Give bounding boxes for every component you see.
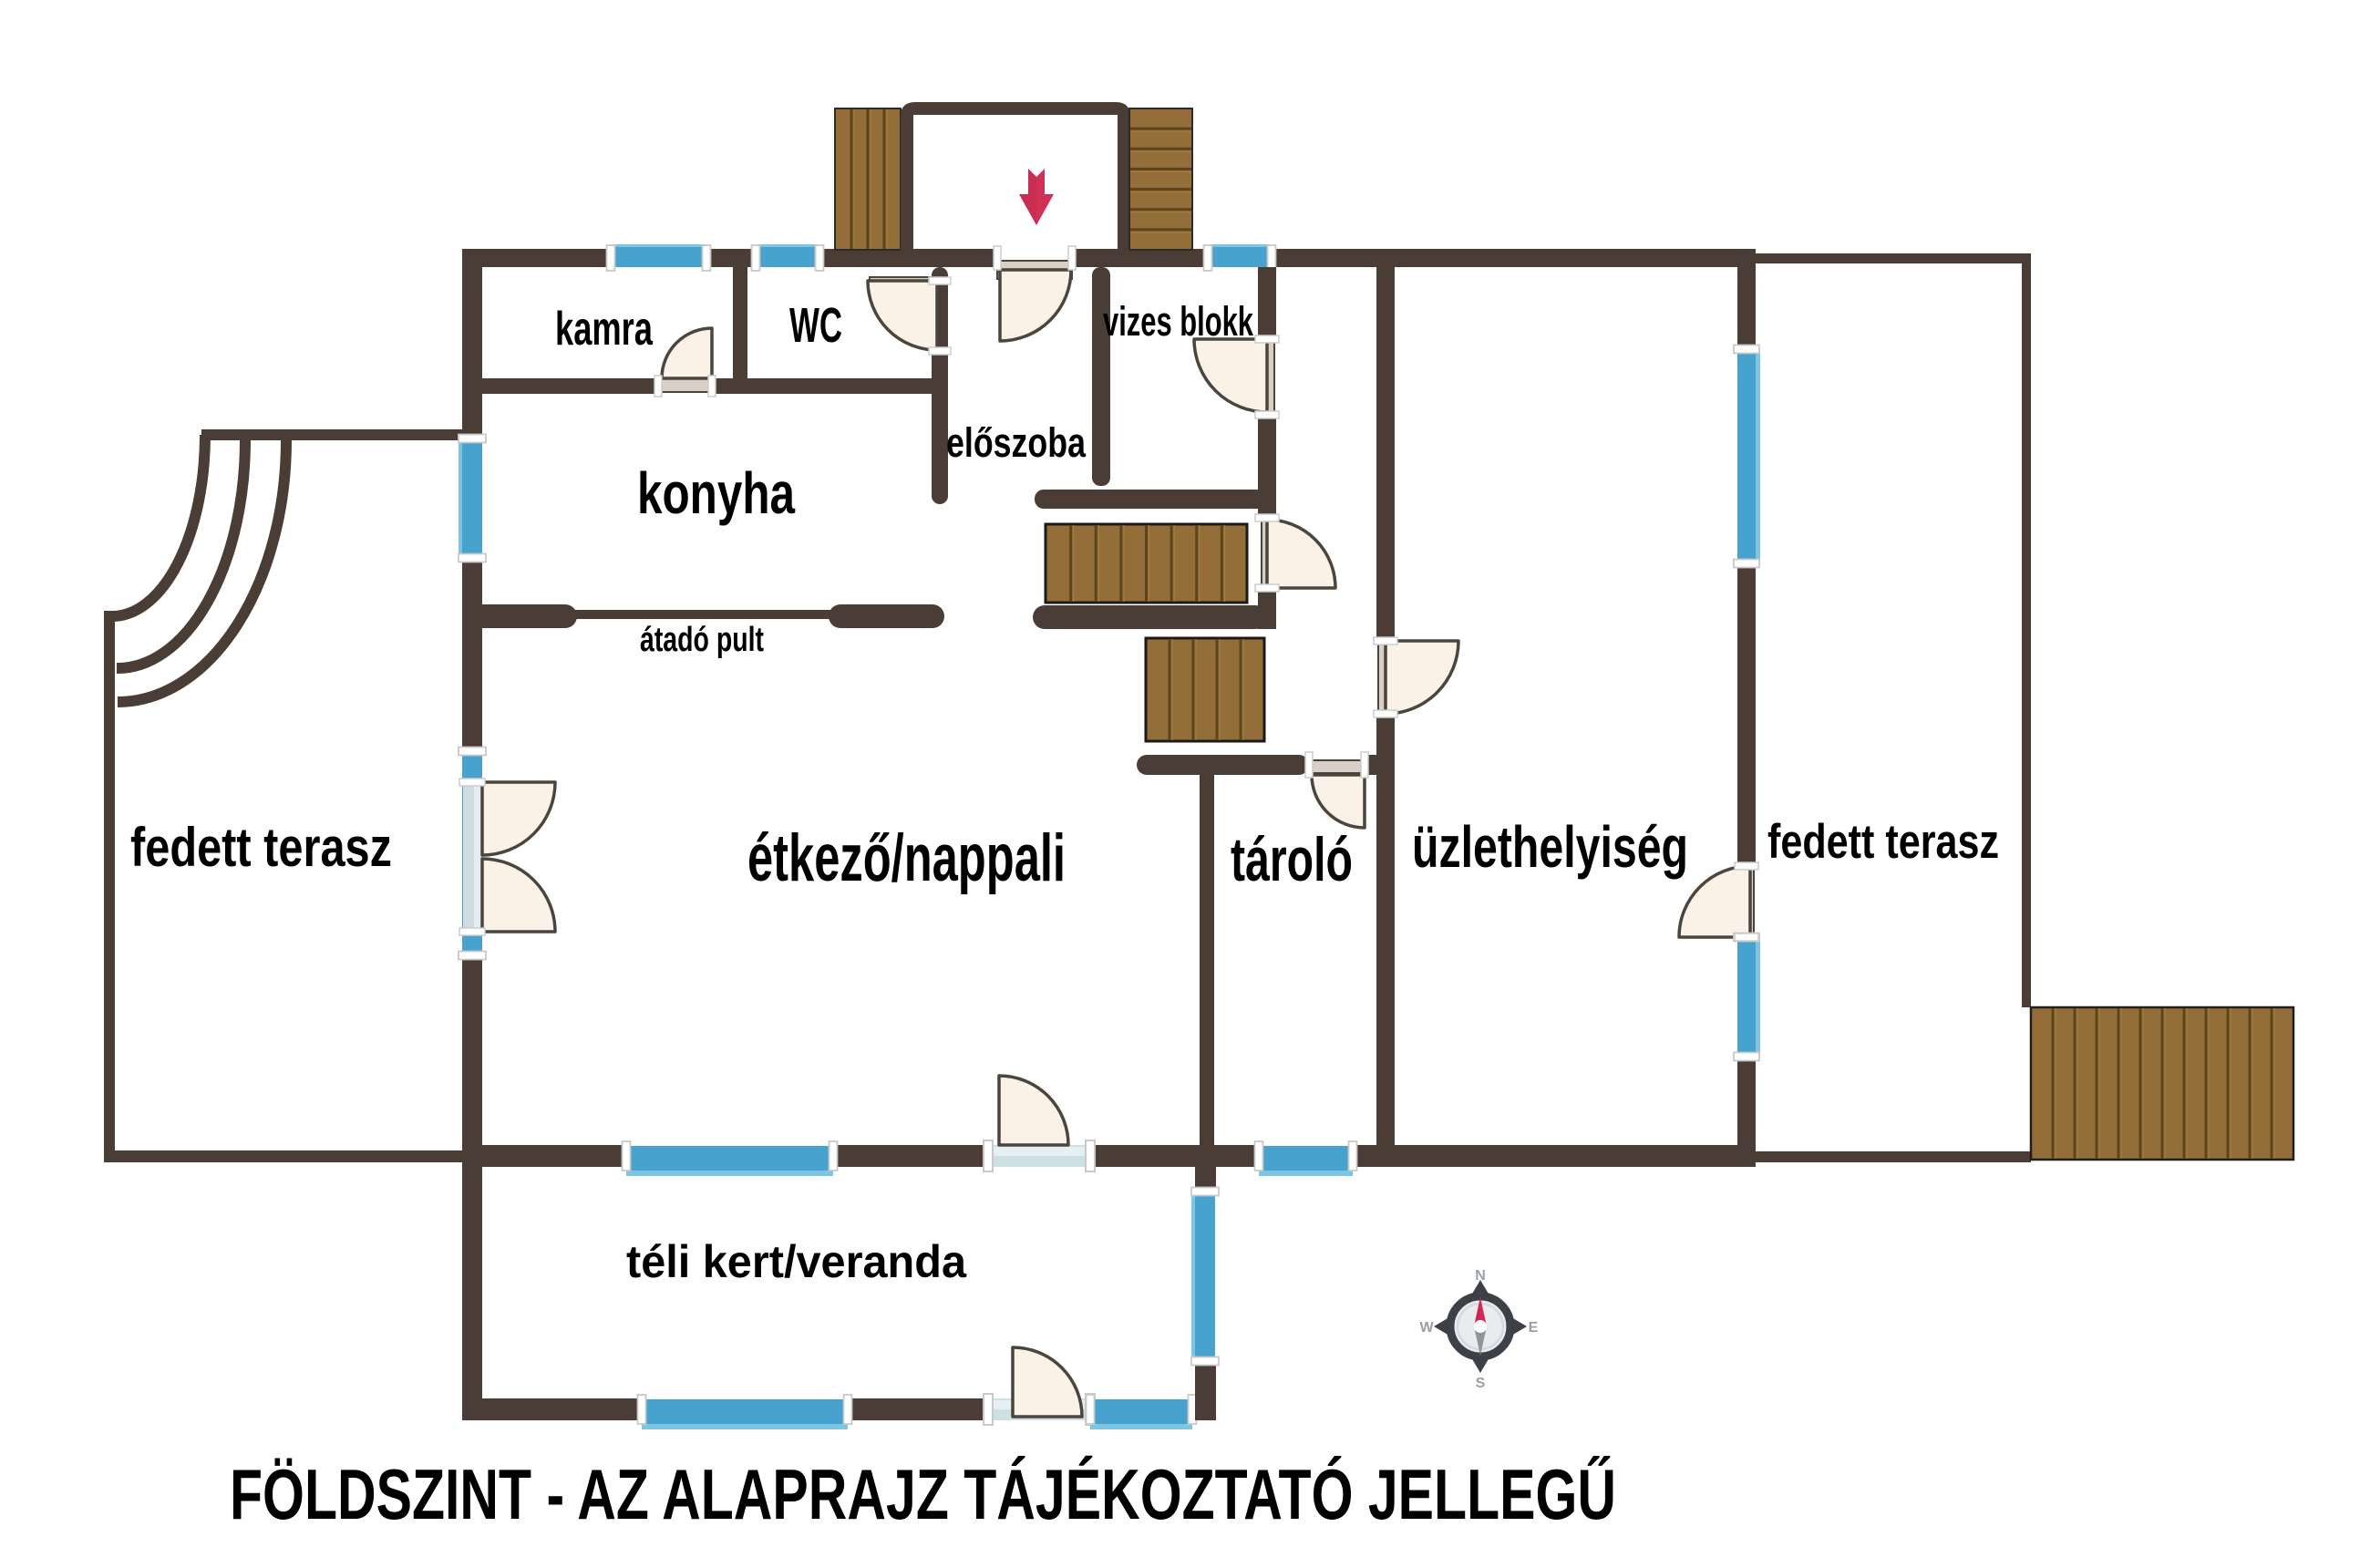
svg-text:étkező/nappali: étkező/nappali [747, 821, 1066, 895]
svg-text:átadó pult: átadó pult [640, 621, 764, 659]
svg-text:WC: WC [789, 298, 842, 353]
svg-text:S: S [1476, 1376, 1486, 1391]
svg-text:FÖLDSZINT - AZ ALAPRAJZ TÁJÉKO: FÖLDSZINT - AZ ALAPRAJZ TÁJÉKOZTATÓ JELL… [230, 1454, 1616, 1534]
svg-text:W: W [1419, 1320, 1434, 1336]
svg-text:kamra: kamra [555, 303, 654, 356]
svg-text:fedett terasz: fedett terasz [1767, 815, 1999, 869]
svg-text:téli kert/veranda: téli kert/veranda [626, 1236, 967, 1287]
svg-text:üzlethelyiség: üzlethelyiség [1412, 814, 1688, 880]
svg-text:N: N [1475, 1268, 1486, 1284]
svg-text:előszoba: előszoba [946, 419, 1087, 466]
svg-text:tároló: tároló [1231, 825, 1353, 894]
svg-text:konyha: konyha [637, 460, 795, 526]
svg-text:fedett terasz: fedett terasz [130, 817, 392, 878]
svg-text:E: E [1529, 1320, 1539, 1336]
